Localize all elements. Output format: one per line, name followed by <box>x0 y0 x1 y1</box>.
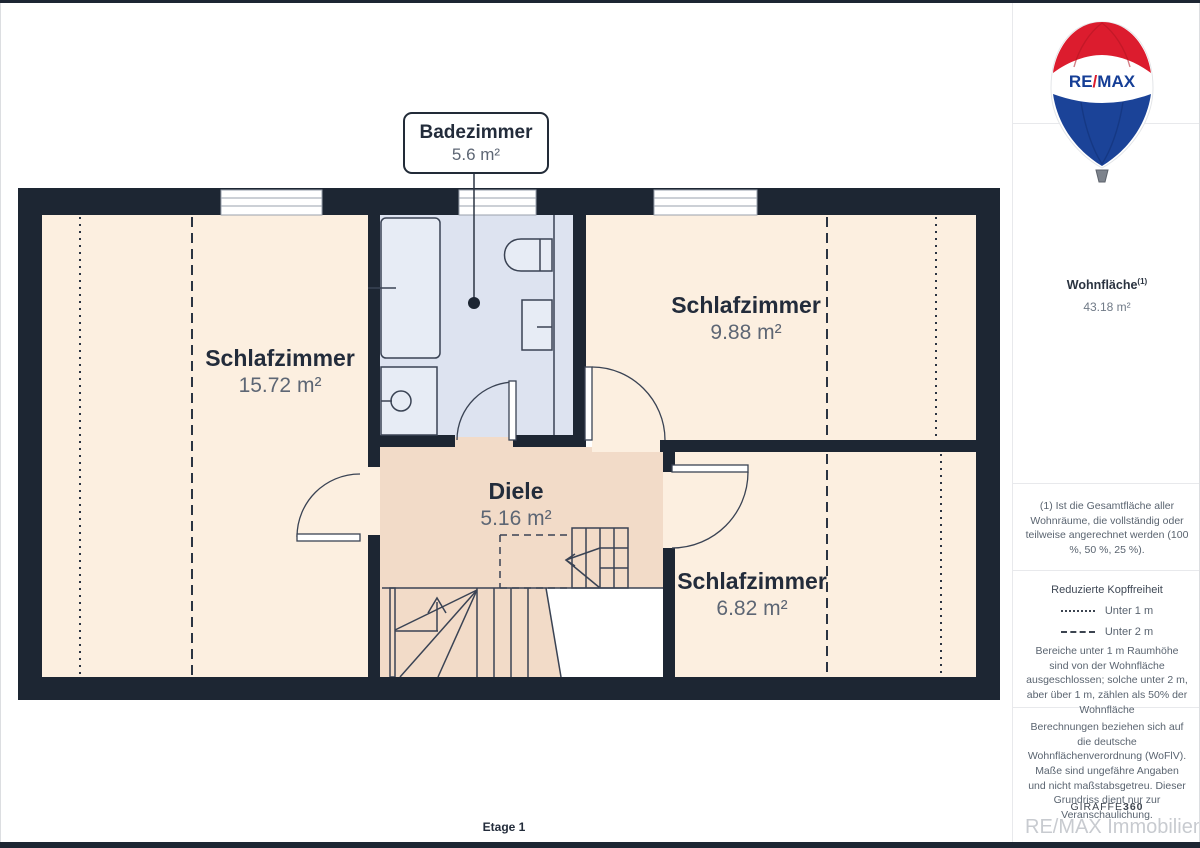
room-label-bedroom-bottom-right: Schlafzimmer 6.82 m² <box>677 568 827 622</box>
wall-hall-right-lower <box>663 548 675 677</box>
wall-bath-bottom-right <box>513 435 573 447</box>
balloon-max: MAX <box>1097 72 1135 91</box>
washbasin <box>522 300 552 350</box>
total-area-value: 43.18 m² <box>1013 300 1200 314</box>
divider <box>1013 483 1200 484</box>
wall-bath-left-lower <box>368 535 380 677</box>
wall-bottom <box>18 677 1000 700</box>
window <box>654 190 757 215</box>
floor-label: Etage 1 <box>483 820 526 834</box>
balloon-wordmark: RE/MAX <box>1069 72 1136 91</box>
room-name: Schlafzimmer <box>671 292 821 319</box>
total-area-title: Wohnfläche(1) <box>1013 277 1200 292</box>
doorway-gap-bath <box>455 437 513 448</box>
bathroom-callout: Badezimmer 5.6 m² <box>403 112 549 174</box>
giraffe-text: GIRAFFE <box>1070 801 1123 813</box>
doorway-gap-bottom-right <box>663 472 675 548</box>
wall-bath-left-upper <box>368 215 380 467</box>
room-area: 5.6 m² <box>452 144 500 165</box>
window <box>221 190 322 215</box>
legend-title: Reduzierte Kopffreiheit <box>1013 584 1200 596</box>
room-name: Schlafzimmer <box>677 568 827 595</box>
balloon-blue-bottom <box>1053 94 1151 166</box>
room-area: 9.88 m² <box>671 319 821 346</box>
leader-dot <box>468 297 480 309</box>
room-label-bedroom-top-right: Schlafzimmer 9.88 m² <box>671 292 821 346</box>
room-name: Diele <box>480 478 551 505</box>
legend-label: Unter 1 m <box>1105 605 1153 617</box>
toilet <box>505 239 553 271</box>
floorplan-page: { "floor": { "label": "Etage 1" }, "call… <box>0 0 1200 848</box>
wall-bath-bottom-left <box>368 435 455 447</box>
balloon-re: RE <box>1069 72 1093 91</box>
remax-balloon-logo: RE/MAX <box>1043 18 1161 196</box>
divider <box>1013 570 1200 571</box>
agency-name: RE/MAX Immobilien DeLux <box>1013 816 1200 839</box>
dashed-line-sample <box>1061 631 1095 633</box>
legend-note: Bereiche unter 1 m Raumhöhe sind von der… <box>1013 644 1200 717</box>
wall-left <box>18 188 42 700</box>
window <box>459 190 536 215</box>
shower <box>381 367 437 435</box>
doorway-gap-left <box>368 467 380 535</box>
balloon-basket <box>1096 170 1108 182</box>
room-label-hallway: Diele 5.16 m² <box>480 478 551 532</box>
wall-bath-right <box>573 215 586 447</box>
top-frame-bar <box>0 0 1200 3</box>
legend-row-under-2m: Unter 2 m <box>1013 624 1200 640</box>
room-label-bedroom-large: Schlafzimmer 15.72 m² <box>205 345 355 399</box>
wall-bedrooms-divider <box>660 440 976 452</box>
total-area-footnote-marker: (1) <box>1137 277 1147 286</box>
room-area: 6.82 m² <box>677 595 827 622</box>
giraffe360-logo: GIRAFFE360 <box>1013 801 1200 813</box>
windows <box>221 190 757 215</box>
room-area: 15.72 m² <box>205 372 355 399</box>
room-name: Badezimmer <box>420 121 533 144</box>
dotted-line-sample <box>1061 610 1095 612</box>
doorway-gap-top-right <box>592 440 660 452</box>
stairwell-void <box>546 588 663 677</box>
giraffe-360: 360 <box>1123 801 1144 813</box>
footnote-text: (1) Ist die Gesamtfläche aller Wohnräume… <box>1013 499 1200 558</box>
total-area-label: Wohnfläche <box>1067 278 1138 292</box>
bottom-frame-bar <box>0 842 1200 848</box>
legend-row-under-1m: Unter 1 m <box>1013 603 1200 619</box>
room-name: Schlafzimmer <box>205 345 355 372</box>
room-area: 5.16 m² <box>480 505 551 532</box>
wall-right <box>976 188 1000 700</box>
bedroom-large-floor <box>42 215 368 677</box>
legend-label: Unter 2 m <box>1105 626 1153 638</box>
bedroom-bottom-right-floor <box>675 452 976 677</box>
